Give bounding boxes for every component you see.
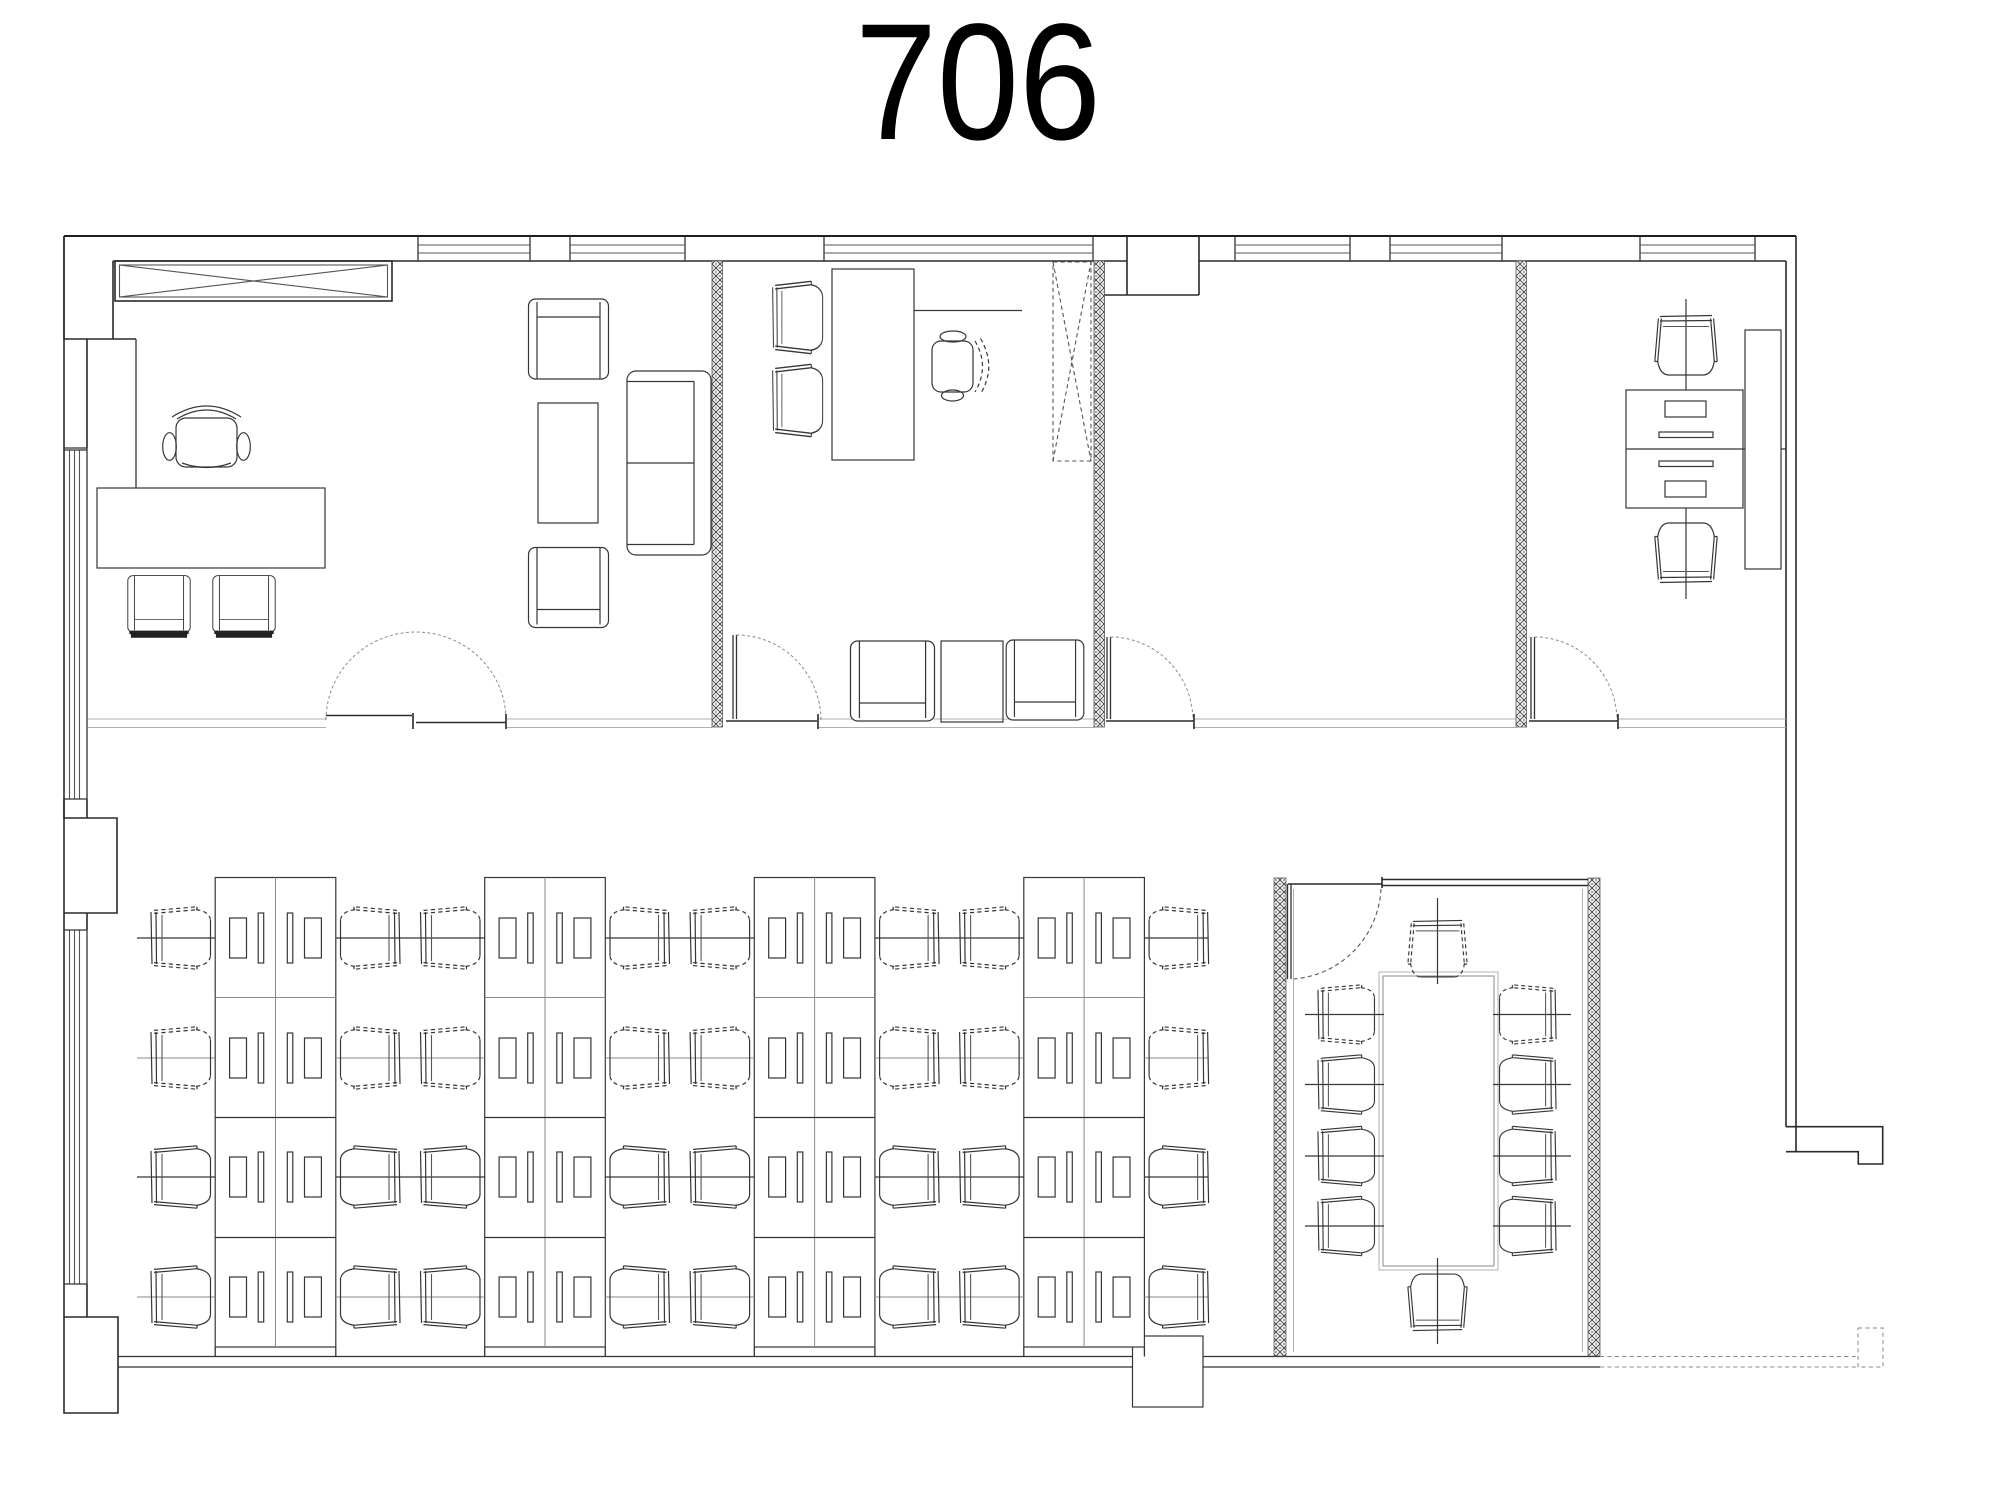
svg-text:706: 706 — [855, 0, 1101, 175]
